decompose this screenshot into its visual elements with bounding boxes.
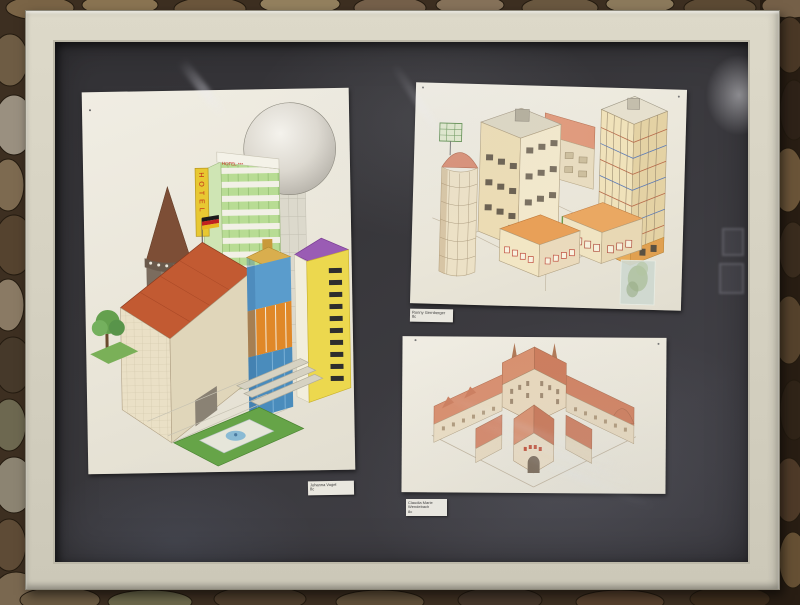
artwork-left-paper: HOTEL *** HOTEL bbox=[82, 88, 356, 475]
gatehouse bbox=[514, 405, 554, 473]
hotel-vertical-sign-text: HOTEL bbox=[197, 172, 205, 215]
artist-label-topright: Ronny Gernberger 8c bbox=[410, 309, 453, 323]
drawing-historic-courtyard bbox=[401, 336, 666, 494]
drawing-isometric-town-block bbox=[410, 82, 687, 310]
artist-class: 8c bbox=[412, 315, 451, 320]
front-left-house bbox=[476, 415, 502, 463]
green-sign bbox=[440, 123, 462, 142]
artist-label-left: Johanna Vogel 8c bbox=[308, 481, 354, 496]
window-reflection bbox=[620, 260, 655, 305]
paper-speck bbox=[89, 109, 91, 111]
artist-class: 8c bbox=[310, 487, 352, 492]
paper-speck bbox=[422, 86, 424, 88]
artist-label-bottomright: Claudia Marie Wendebach 8c bbox=[406, 499, 447, 516]
paper-speck bbox=[415, 339, 417, 341]
paper-speck bbox=[657, 343, 659, 345]
artwork-topright-paper bbox=[410, 82, 687, 310]
front-right-house bbox=[566, 415, 592, 463]
paper-speck bbox=[678, 96, 680, 98]
framed-artwork-photo: HOTEL *** HOTEL bbox=[0, 0, 800, 605]
artwork-bottomright-paper bbox=[401, 336, 666, 494]
round-tower bbox=[436, 123, 479, 277]
drawing-isometric-city-sphere: HOTEL *** HOTEL bbox=[82, 88, 356, 475]
arch-gate bbox=[528, 456, 540, 473]
artist-class: 8c bbox=[408, 510, 445, 515]
